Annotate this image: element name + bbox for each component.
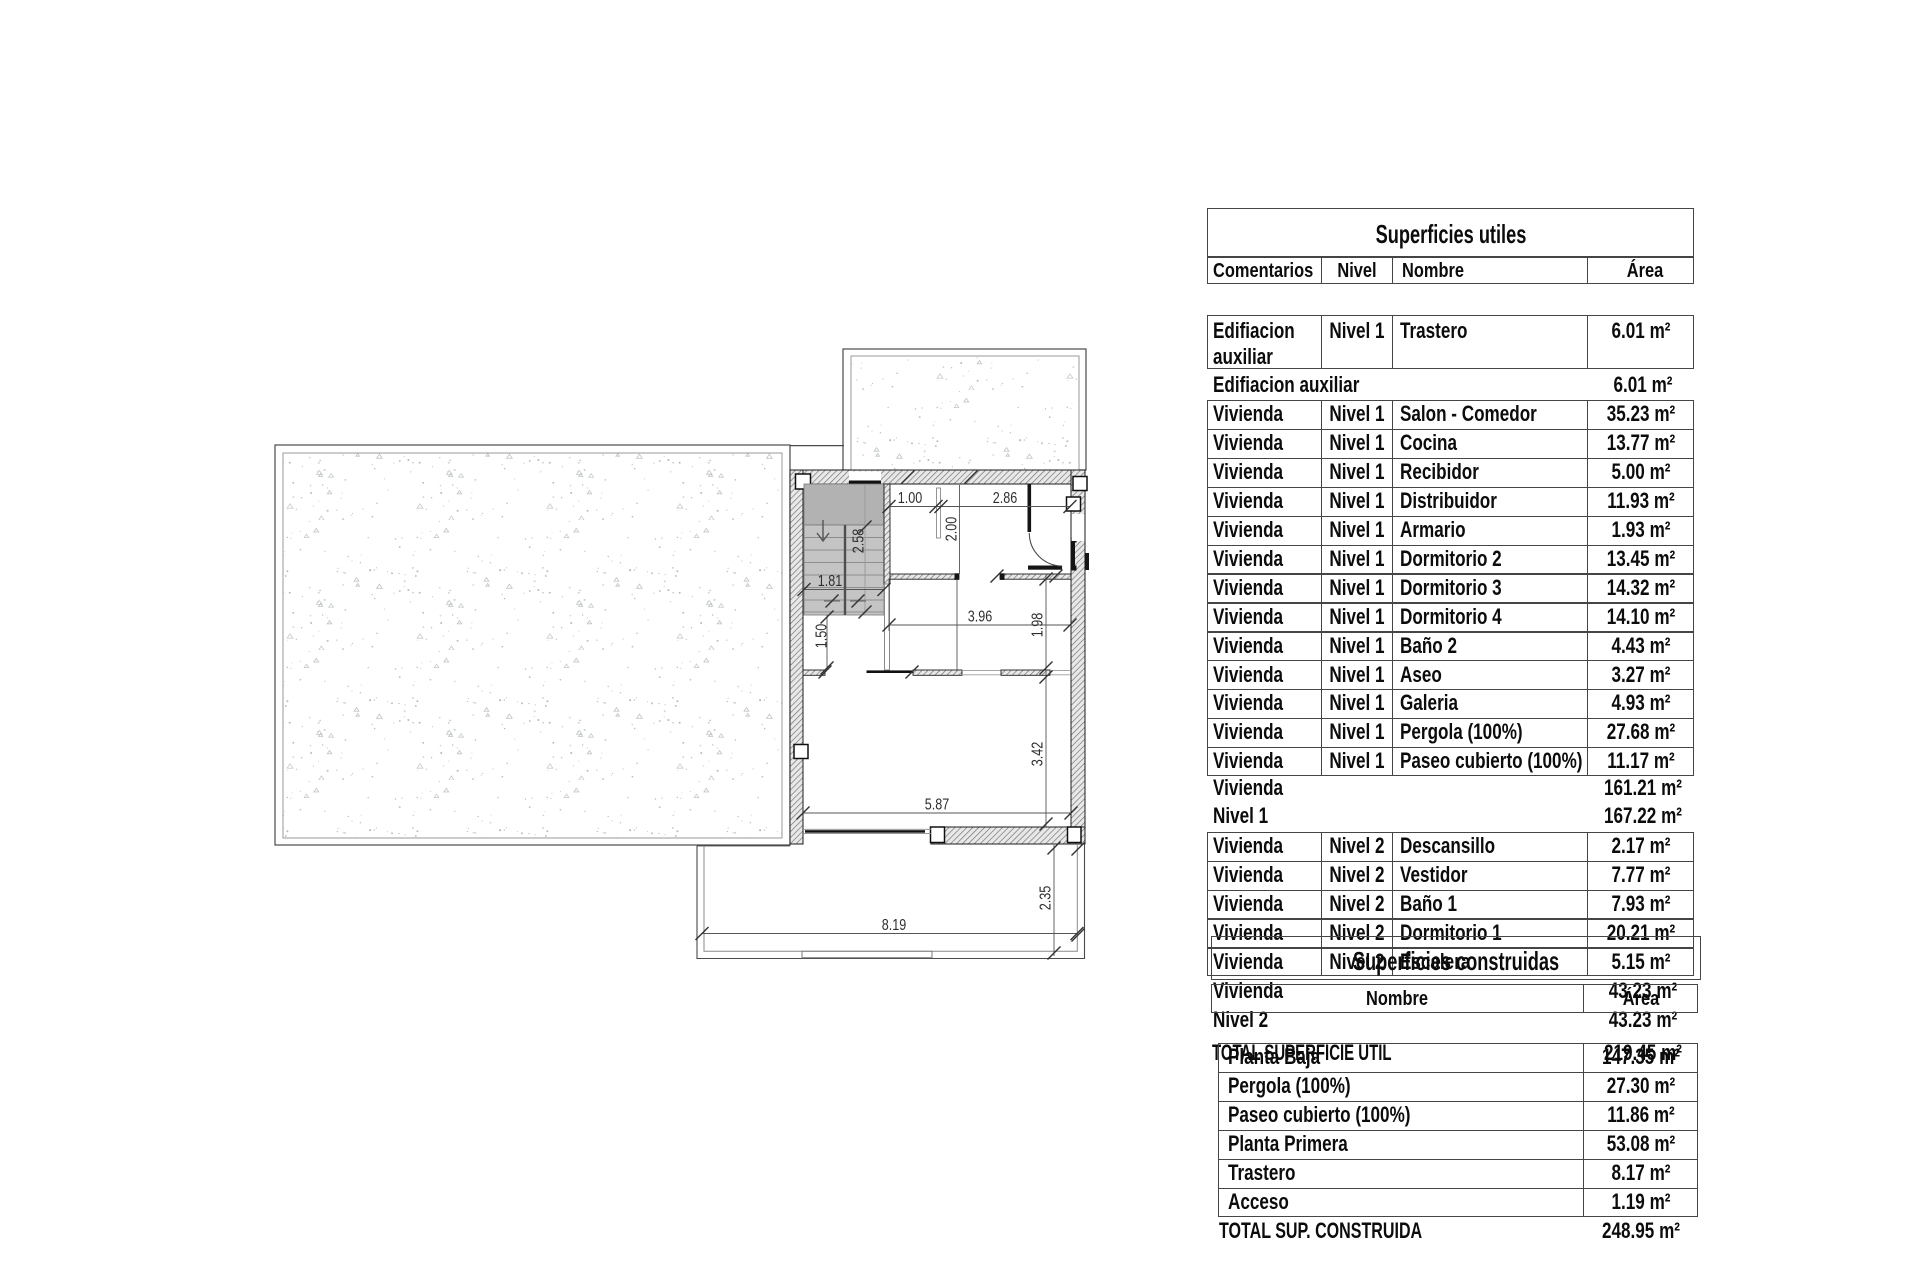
svg-text:3.42: 3.42 (1030, 742, 1047, 767)
svg-text:1.98: 1.98 (1030, 613, 1047, 638)
svg-text:2.35: 2.35 (1038, 886, 1055, 911)
svg-text:2.86: 2.86 (993, 490, 1018, 507)
svg-text:1.81: 1.81 (818, 573, 843, 590)
svg-text:1.00: 1.00 (898, 490, 923, 507)
svg-text:8.19: 8.19 (882, 917, 907, 934)
svg-text:2.00: 2.00 (944, 516, 961, 541)
svg-text:1.50: 1.50 (814, 623, 831, 648)
svg-text:2.58: 2.58 (851, 529, 868, 554)
svg-text:3.96: 3.96 (968, 609, 993, 626)
svg-text:5.87: 5.87 (925, 797, 950, 814)
